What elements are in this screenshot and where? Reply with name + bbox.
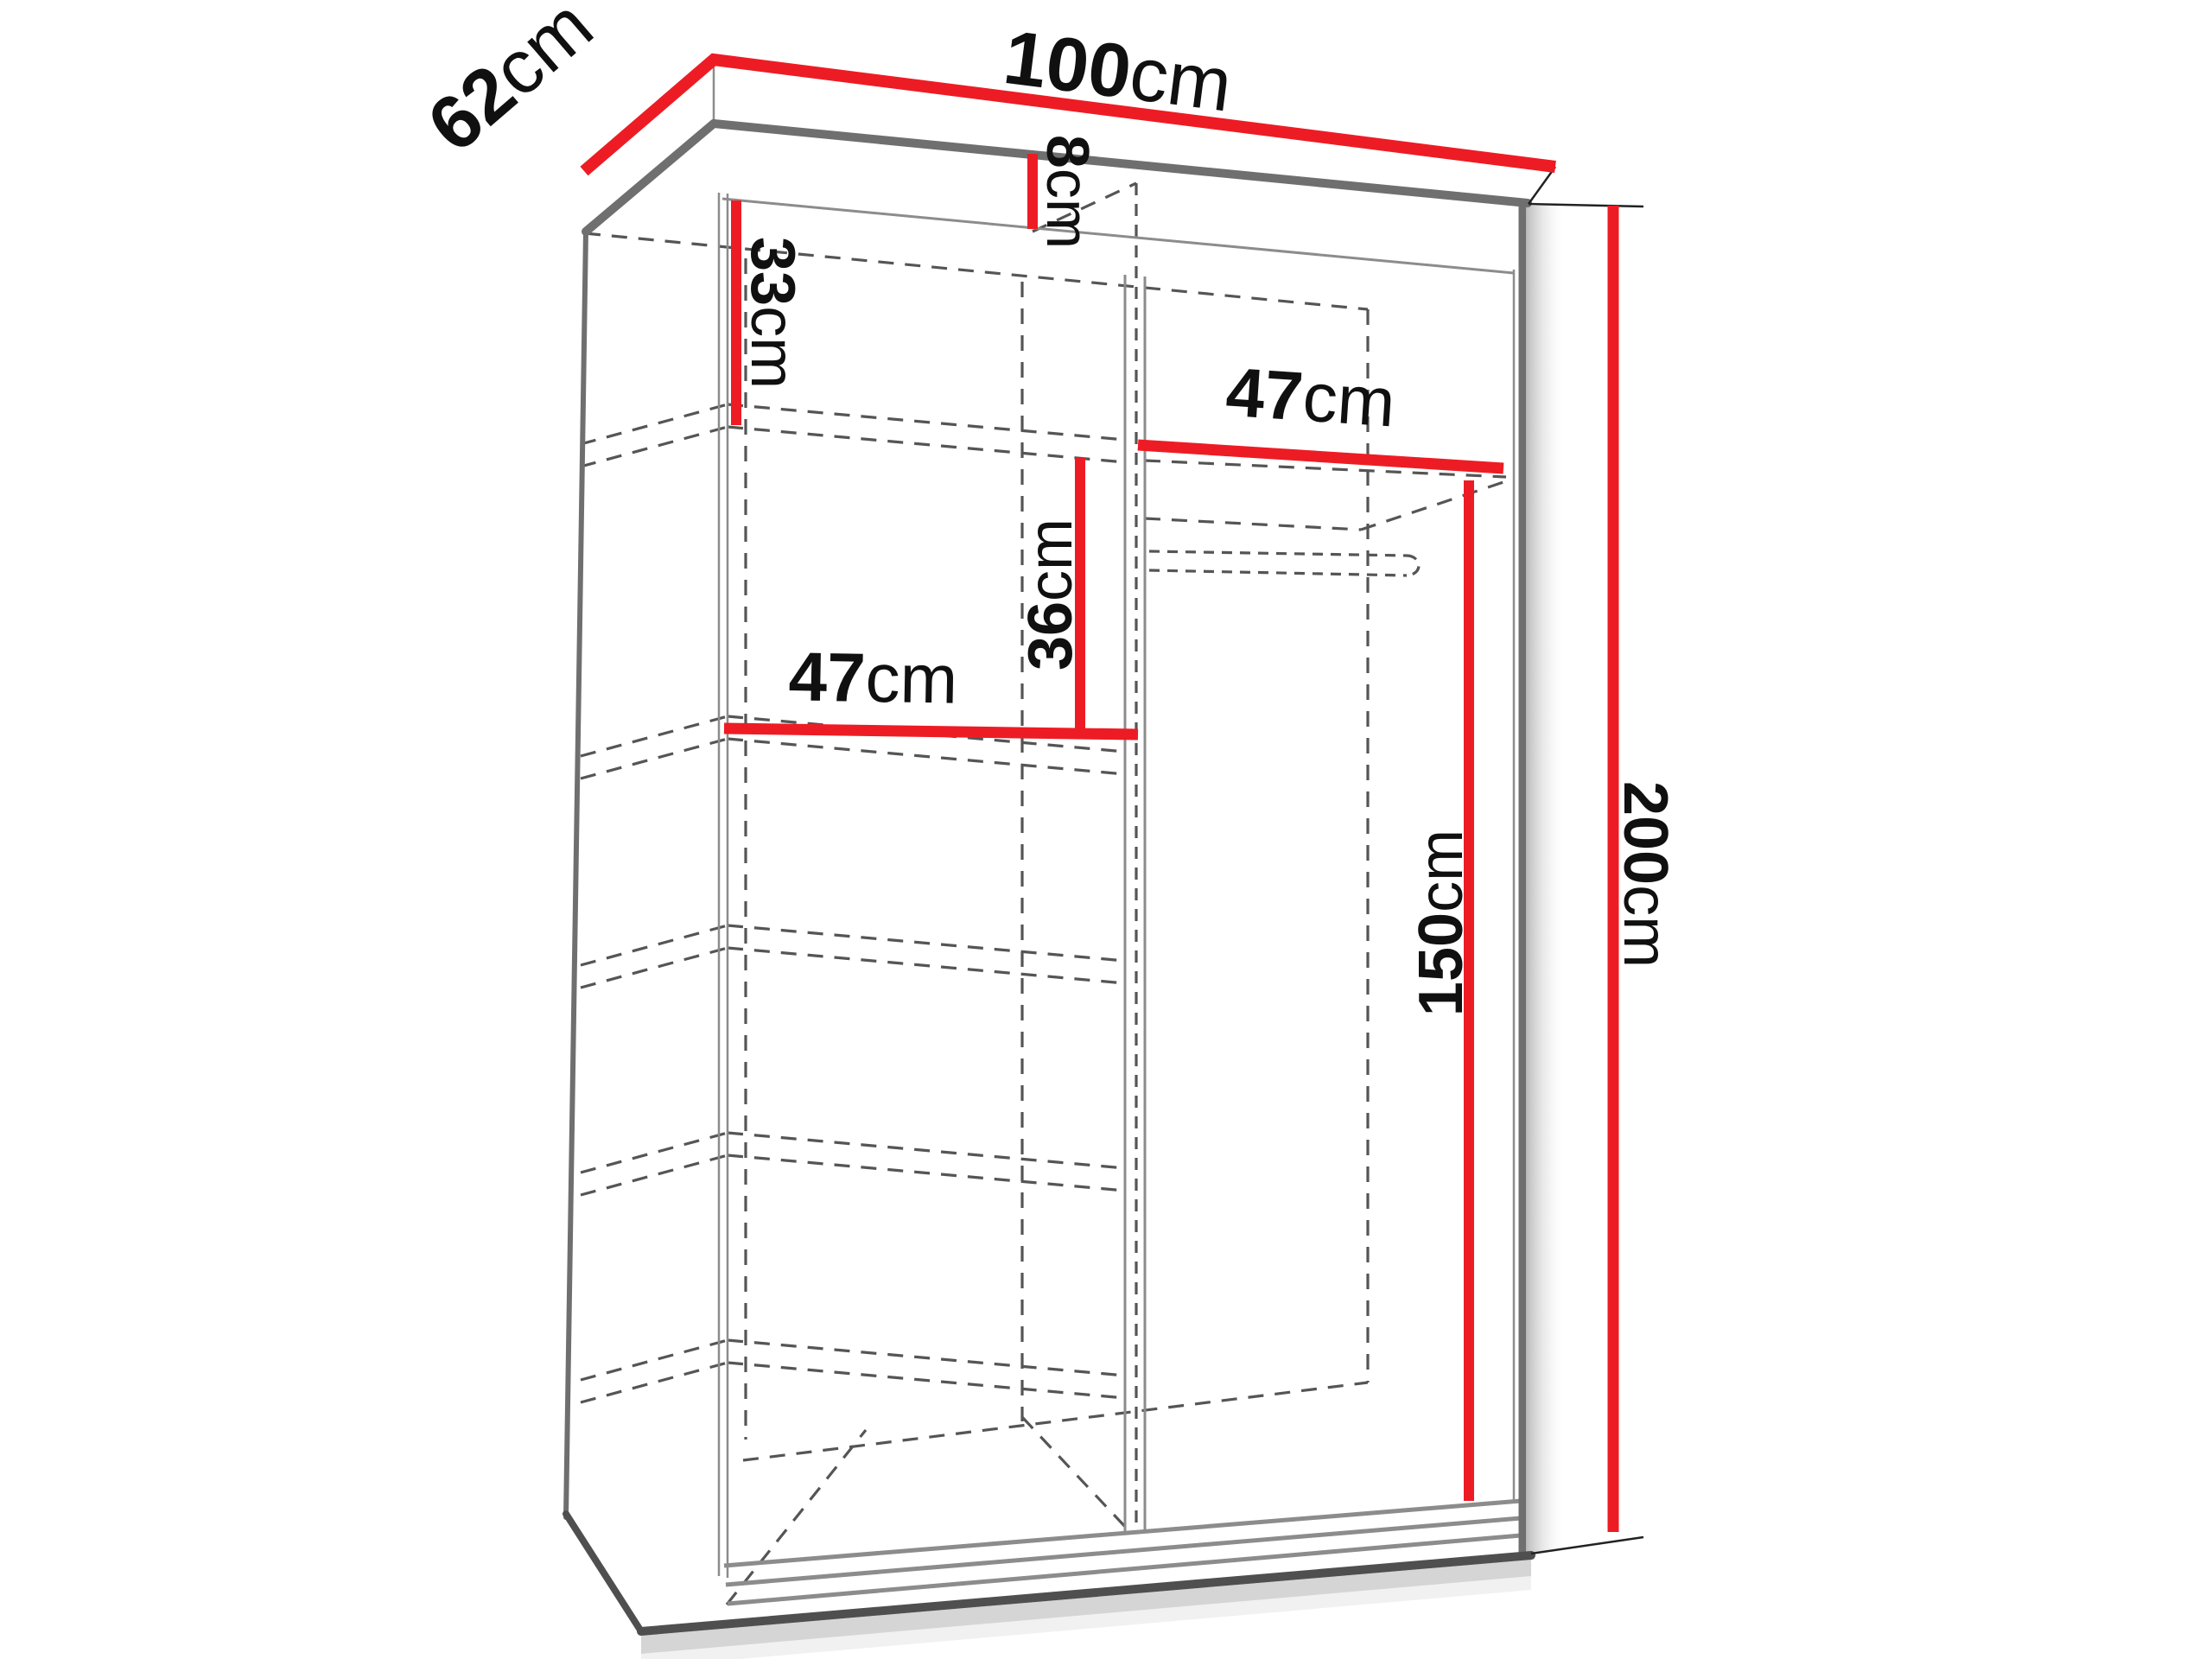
label-top-section-33cm: 33cm (738, 237, 807, 389)
page-background (0, 0, 2212, 1659)
label-shelf-right-47cm: 47cm (1224, 353, 1397, 442)
label-height-200cm: 200cm (1611, 781, 1680, 968)
label-shelf-left-47cm: 47cm (788, 638, 958, 717)
right-panel-shading (1527, 206, 1567, 1552)
label-shelf-gap-36cm: 36cm (1016, 518, 1085, 671)
dim-line-shelf-left-47 (724, 728, 1138, 734)
wardrobe-dimension-diagram: 100cm 62cm 8cm 33cm 47cm 36cm 47cm 150cm… (0, 0, 2212, 1659)
label-top-rail-8cm: 8cm (1034, 135, 1102, 249)
label-hanging-150cm: 150cm (1407, 829, 1476, 1016)
